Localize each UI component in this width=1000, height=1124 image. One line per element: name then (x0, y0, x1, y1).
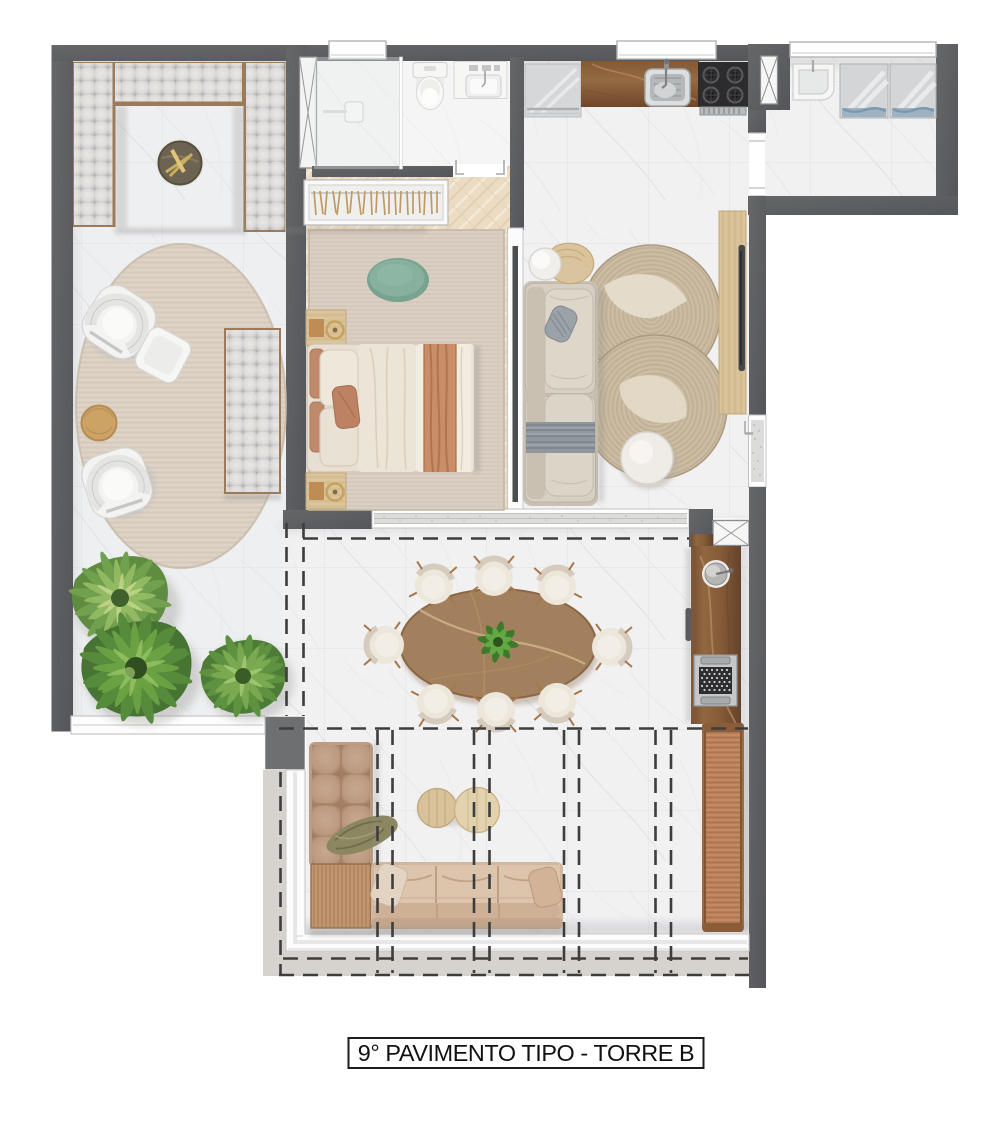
svg-text:9° PAVIMENTO TIPO - TORRE B: 9° PAVIMENTO TIPO - TORRE B (358, 1040, 695, 1066)
